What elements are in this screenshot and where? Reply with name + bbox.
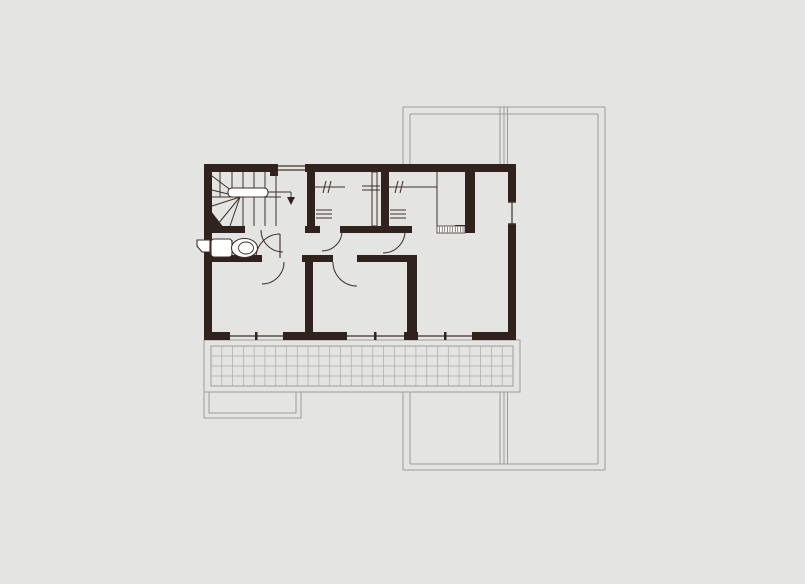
wall-closet1-left (307, 172, 315, 226)
stair-handrail (228, 188, 268, 197)
closet2-shelf-hatch (437, 226, 465, 233)
wall-closet-mid (381, 172, 389, 233)
door-arc-closet1 (322, 231, 342, 251)
wall-closets-bottom (340, 226, 412, 233)
window-bottom-middle-tick (374, 332, 377, 340)
canopy-outline-outer (204, 392, 301, 418)
wall-bottom-center (283, 332, 347, 340)
wall-closet1-bottom-left (305, 226, 320, 233)
window-bottom-left-tick (255, 332, 258, 340)
wall-top-main (305, 164, 516, 172)
toilet-cistern-spout (197, 240, 210, 252)
door-arc-bedroom-middle (333, 262, 357, 286)
wall-bottom-pier (404, 332, 418, 340)
wall-closet2-right (465, 172, 475, 232)
door-arc-closet2 (383, 231, 405, 253)
wall-top-left (204, 164, 278, 172)
floor-plan-stage (0, 0, 805, 584)
wall-bottom-left (204, 332, 230, 340)
canopy-outline-inner (209, 392, 296, 413)
wall-bedrooms-divider (305, 262, 313, 332)
wall-top-window-stub (270, 164, 278, 176)
door-arc-bedroom-left (262, 262, 284, 284)
stair-direction-arrow (287, 197, 295, 205)
closet-divider-wall (372, 172, 377, 226)
toilet-tank (211, 239, 232, 257)
wall-bottom-right (472, 332, 516, 340)
floor-plan (0, 0, 805, 584)
stair-winder-ray-5 (230, 197, 240, 226)
wall-right-upper (508, 164, 516, 202)
wall-hall-cap (302, 255, 333, 262)
window-bottom-right-tick (444, 332, 447, 340)
wall-right-lower (508, 224, 516, 340)
wall-bedroom-right-divider (407, 255, 417, 332)
